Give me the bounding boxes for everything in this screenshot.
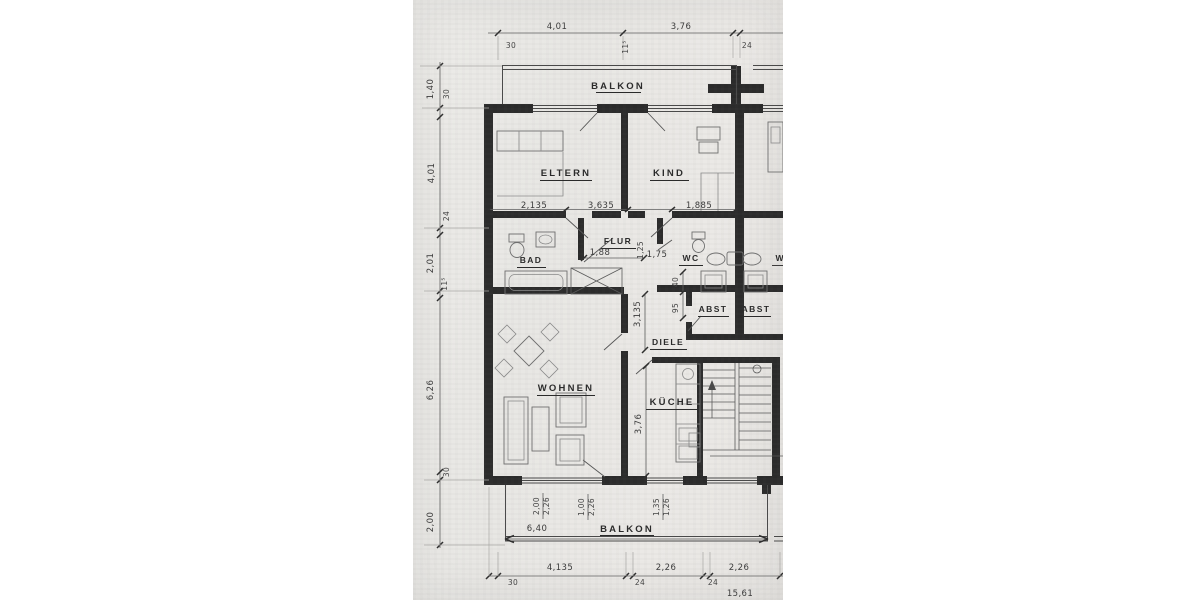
armchair-2 [556,435,584,465]
dim-eltern-2135: 2,135 [521,201,547,211]
room-label-bad: BAD [520,255,543,265]
room-label-wc: WC [683,253,700,263]
dim-left-626: 6,26 [426,380,436,401]
dim-left-401: 4,01 [427,163,437,184]
room-label-flur: FLUR [604,236,632,246]
dim-bottom-226a: 2,26 [656,563,677,573]
dim-bottom-24b: 24 [708,578,718,587]
dim-eltern-3635: 3,635 [588,201,614,211]
dim-top-30: 30 [506,41,516,50]
dim-bottom-30: 30 [508,578,518,587]
dim-left-24: 24 [442,211,451,221]
dim-bottom-226b: 2,26 [729,563,750,573]
dim-top-401: 4,01 [547,22,568,32]
dining-table [495,323,559,378]
room-label-wohnen: WOHNEN [538,383,594,394]
dim-left-30a: 30 [442,89,451,99]
dim-left-30b: 30 [442,467,451,477]
room-label-eltern: ELTERN [541,168,592,179]
dim-bottom-total: 15,61 [727,589,753,599]
dim-flur-125: 1,25 [636,241,645,259]
dim-pair2a: 1,00 [577,498,586,516]
dim-kind-1885: 1,885 [686,201,712,211]
dim-pair3a: 1,35 [652,498,661,516]
dim-top-24: 24 [742,41,752,50]
coffee-table [532,407,549,451]
neighbor-bed [768,122,783,172]
kind-furniture [697,127,734,211]
dim-kueche-376: 3,76 [634,414,644,435]
dim-bottom-24a: 24 [635,578,645,587]
dim-95: 95 [671,303,680,313]
wc-toilet [692,232,705,253]
dim-pair2b: 2,26 [587,498,596,516]
room-label-wc-neighbor: WC [776,253,783,263]
room-label-diele: DIELE [652,337,684,347]
room-label-abst-left: ABST [699,304,728,314]
dim-balkon-640: 6,40 [527,524,548,534]
sink [536,232,555,247]
floorplan-drawing: BALKON ELTERN KIND FLUR BAD WC WC ABST A… [413,0,783,600]
toilet [509,234,524,258]
room-label-kind: KIND [653,168,685,179]
room-label-kueche: KÜCHE [650,397,695,408]
wardrobe [497,131,563,151]
bathtub [505,271,567,294]
dim-left-140: 1,40 [426,79,436,100]
room-label-balkon-bottom: BALKON [600,524,654,535]
sofa [504,397,528,464]
dim-40: 40 [671,277,680,287]
dim-pair1a: 2,00 [532,497,541,515]
dim-left-201: 2,01 [426,253,436,274]
dim-bottom-4135: 4,135 [547,563,573,573]
room-label-balkon-top: BALKON [591,81,645,92]
dim-top-115: 11⁵ [621,40,630,53]
floorplan-paper: BALKON ELTERN KIND FLUR BAD WC WC ABST A… [413,0,783,600]
dim-diele-3135: 3,135 [633,301,643,327]
room-label-abst-right: ABST [742,304,771,314]
dim-top-376: 3,76 [671,22,692,32]
staircase [689,363,783,456]
dim-pair3b: 1,26 [662,498,671,516]
dim-flur-188: 1,88 [590,248,611,258]
dim-pair1b: 2,26 [542,497,551,515]
armchair-1 [556,393,586,427]
twin-basins [707,252,761,265]
scan-page: BALKON ELTERN KIND FLUR BAD WC WC ABST A… [0,0,1200,600]
dim-left-115: 11⁵ [440,277,449,290]
dim-left-200: 2,00 [426,512,436,533]
dim-flur-175: 1,75 [647,250,668,260]
